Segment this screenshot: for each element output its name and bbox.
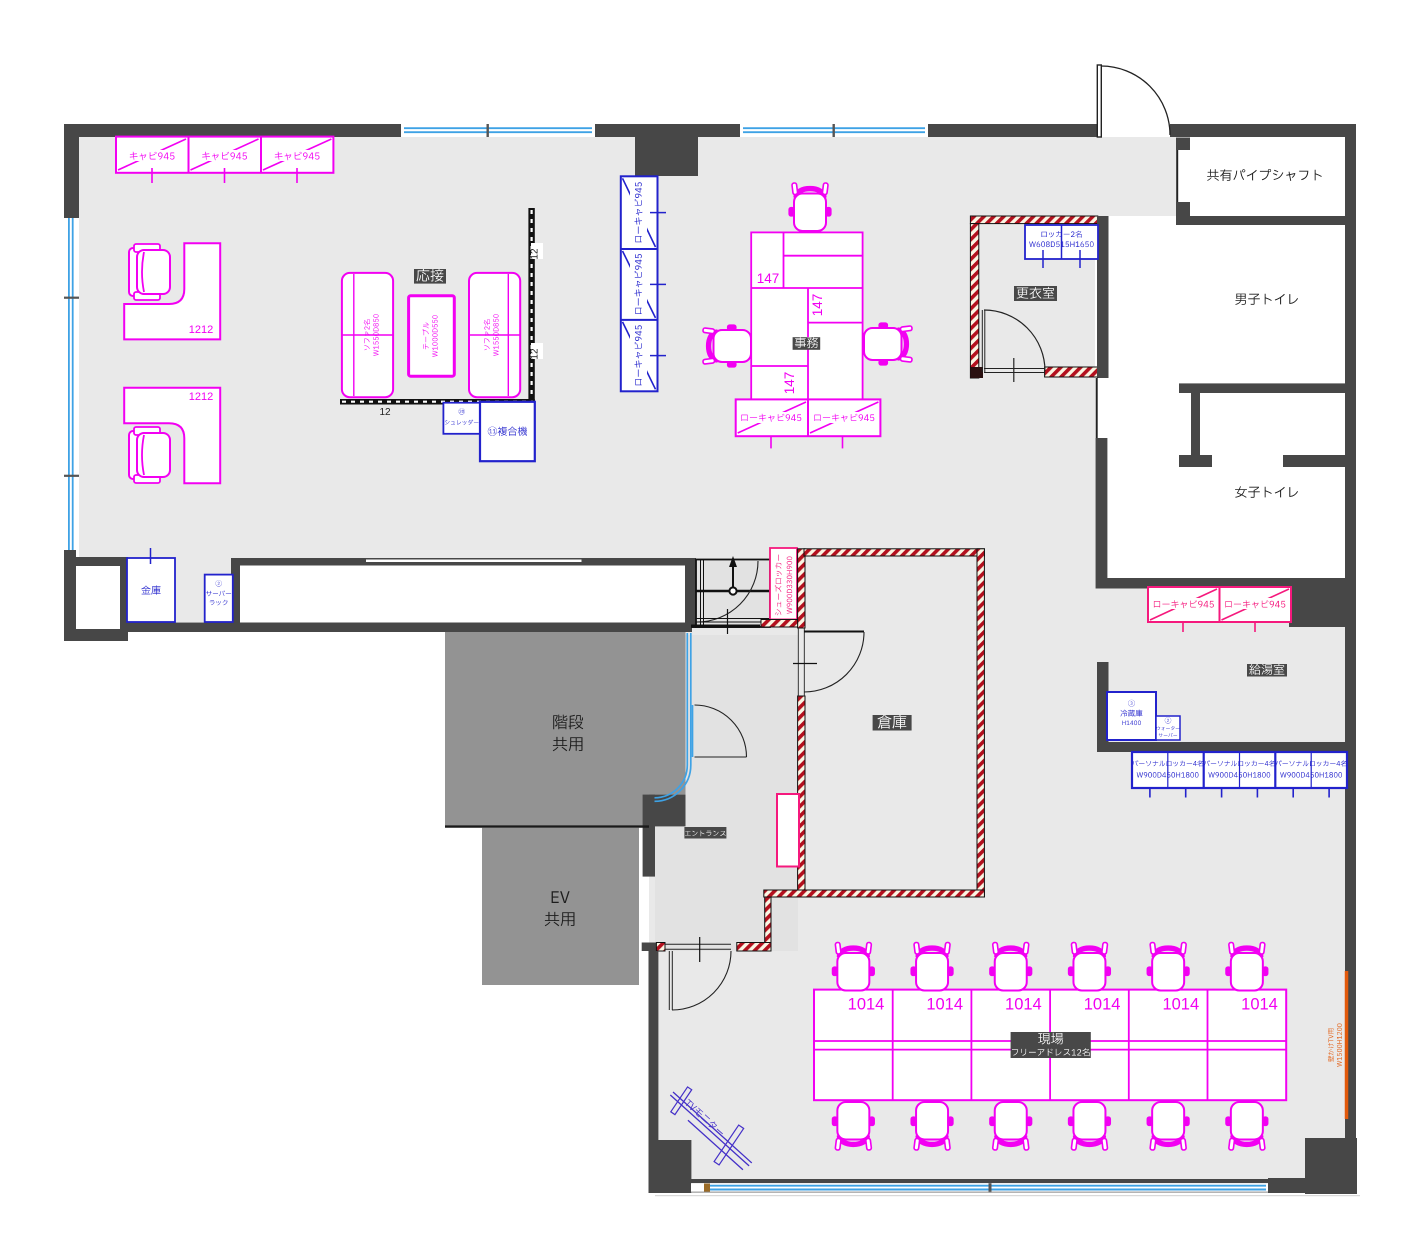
svg-text:12: 12 [379, 407, 391, 418]
svg-text:1014: 1014 [1084, 996, 1121, 1014]
svg-text:1014: 1014 [926, 996, 963, 1014]
svg-text:147: 147 [782, 372, 797, 395]
svg-text:12: 12 [530, 348, 541, 360]
svg-text:1014: 1014 [1241, 996, 1278, 1014]
svg-text:12: 12 [530, 248, 541, 260]
svg-text:1014: 1014 [848, 996, 885, 1014]
svg-text:147: 147 [810, 294, 825, 317]
svg-text:1014: 1014 [1005, 996, 1042, 1014]
svg-text:1014: 1014 [1162, 996, 1199, 1014]
svg-text:1212: 1212 [189, 391, 213, 403]
svg-text:1212: 1212 [189, 324, 213, 336]
svg-text:147: 147 [757, 271, 780, 286]
